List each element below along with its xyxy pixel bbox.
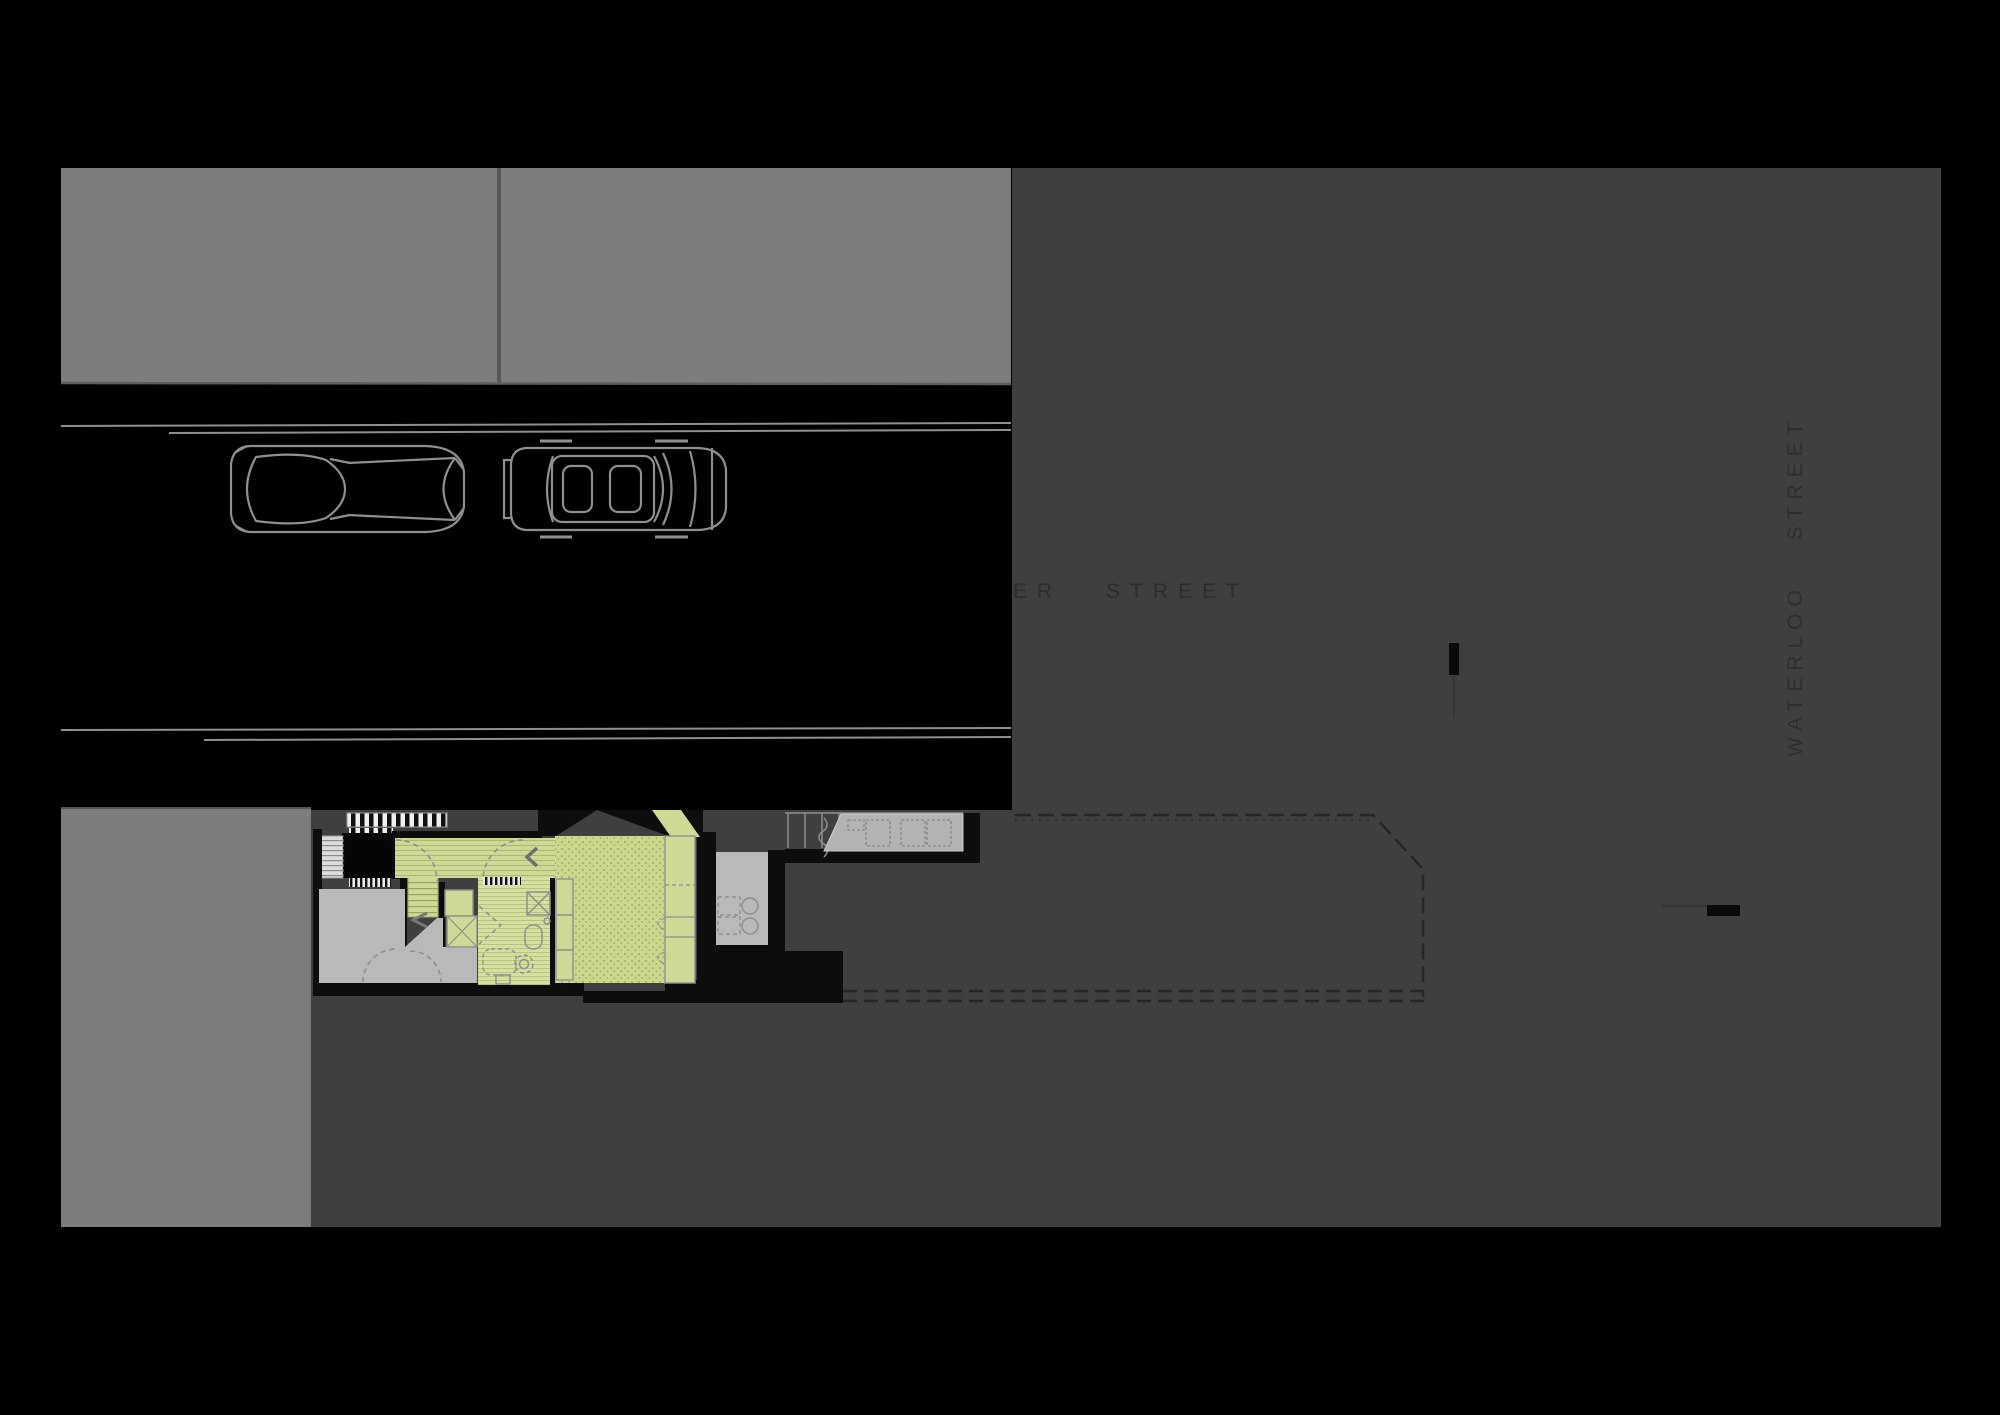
closet — [445, 890, 473, 916]
kitchen — [716, 852, 768, 945]
building-block-south-west — [61, 808, 311, 1227]
hallway — [395, 838, 565, 881]
cabinets-left — [556, 879, 573, 980]
building-party-wall — [497, 168, 501, 383]
rear-deck — [824, 814, 963, 851]
site-plan-drawing: ER STREET WATERLOO STREET — [0, 0, 2000, 1415]
building-block-north-east — [501, 168, 1011, 384]
store-x — [447, 916, 477, 947]
kerb-lines — [61, 423, 1011, 740]
cross-street-label: ER STREET — [1013, 580, 1249, 603]
parked-cars — [231, 441, 726, 537]
site-plan-canvas: ER STREET WATERLOO STREET — [0, 0, 2000, 1415]
entry-courtyard — [342, 833, 393, 878]
entry-boardwalk — [347, 813, 447, 827]
side-street-label: WATERLOO STREET — [1784, 415, 1807, 757]
bathroom — [478, 877, 550, 985]
threshold-ticks — [349, 878, 391, 887]
chimney-mark — [1449, 643, 1459, 675]
bedroom — [319, 889, 405, 983]
building-block-north-west — [61, 168, 497, 383]
bathroom-threshold — [483, 877, 521, 885]
context-buildings — [61, 168, 1941, 1227]
car-icon-1 — [231, 446, 464, 532]
building-edge-line — [61, 383, 1011, 384]
living-room — [555, 836, 695, 983]
car-icon-2 — [504, 441, 726, 537]
gate-mark — [1707, 905, 1740, 916]
